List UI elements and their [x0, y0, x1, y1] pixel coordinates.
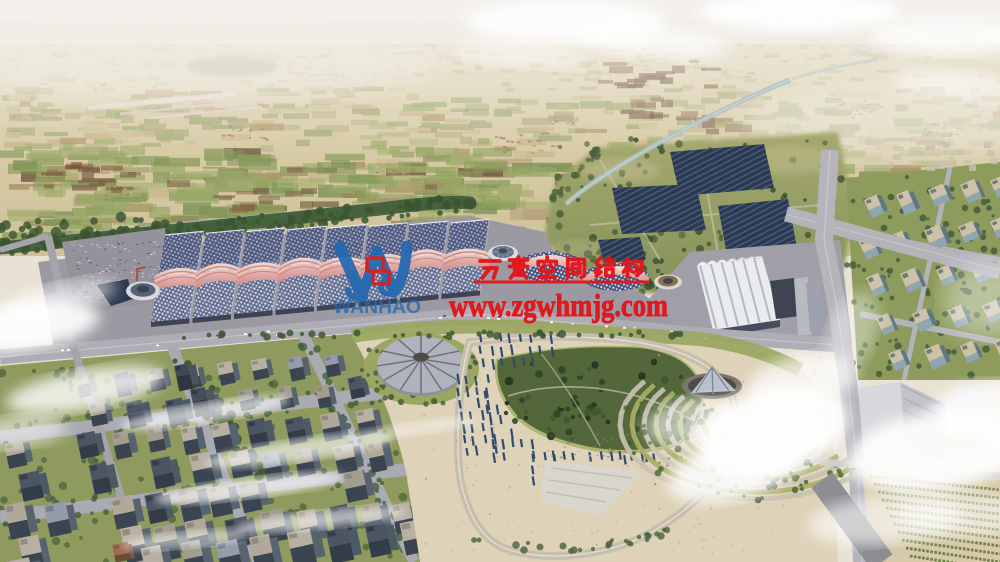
svg-text:WANHAO: WANHAO — [333, 297, 421, 317]
svg-text:www.zgwhmjg.com: www.zgwhmjg.com — [449, 288, 668, 323]
